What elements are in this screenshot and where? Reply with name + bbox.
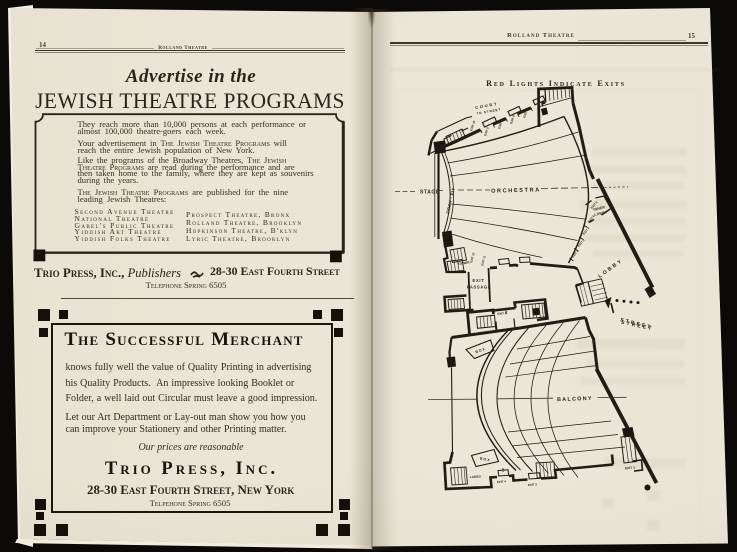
svg-text:PASSAGE: PASSAGE [467, 285, 492, 290]
svg-text:ORCHESTRA: ORCHESTRA [491, 187, 541, 194]
svg-text:EXIT 1: EXIT 1 [625, 466, 635, 471]
svg-text:LADIES: LADIES [470, 474, 481, 479]
svg-text:BALCONY: BALCONY [557, 396, 593, 403]
svg-text:EXIT 9: EXIT 9 [483, 126, 490, 136]
svg-text:UP: UP [504, 310, 508, 315]
svg-text:LOBBY: LOBBY [597, 258, 624, 280]
svg-text:EXIT 11: EXIT 11 [480, 255, 487, 266]
svg-text:UP: UP [501, 468, 505, 472]
svg-text:BOX: BOX [475, 347, 487, 354]
svg-text:EXIT 3: EXIT 3 [577, 238, 586, 248]
svg-text:EXIT: EXIT [473, 278, 485, 283]
svg-text:EXIT 3: EXIT 3 [528, 482, 537, 487]
svg-text:STAGE: STAGE [420, 190, 440, 196]
svg-text:EXIT 12: EXIT 12 [469, 252, 476, 264]
svg-text:EXIT 4: EXIT 4 [497, 479, 506, 484]
svg-text:BOX: BOX [480, 456, 491, 462]
svg-text:EXIT 10: EXIT 10 [469, 120, 476, 132]
svg-text:ORCH - PIT: ORCH - PIT [445, 187, 456, 214]
